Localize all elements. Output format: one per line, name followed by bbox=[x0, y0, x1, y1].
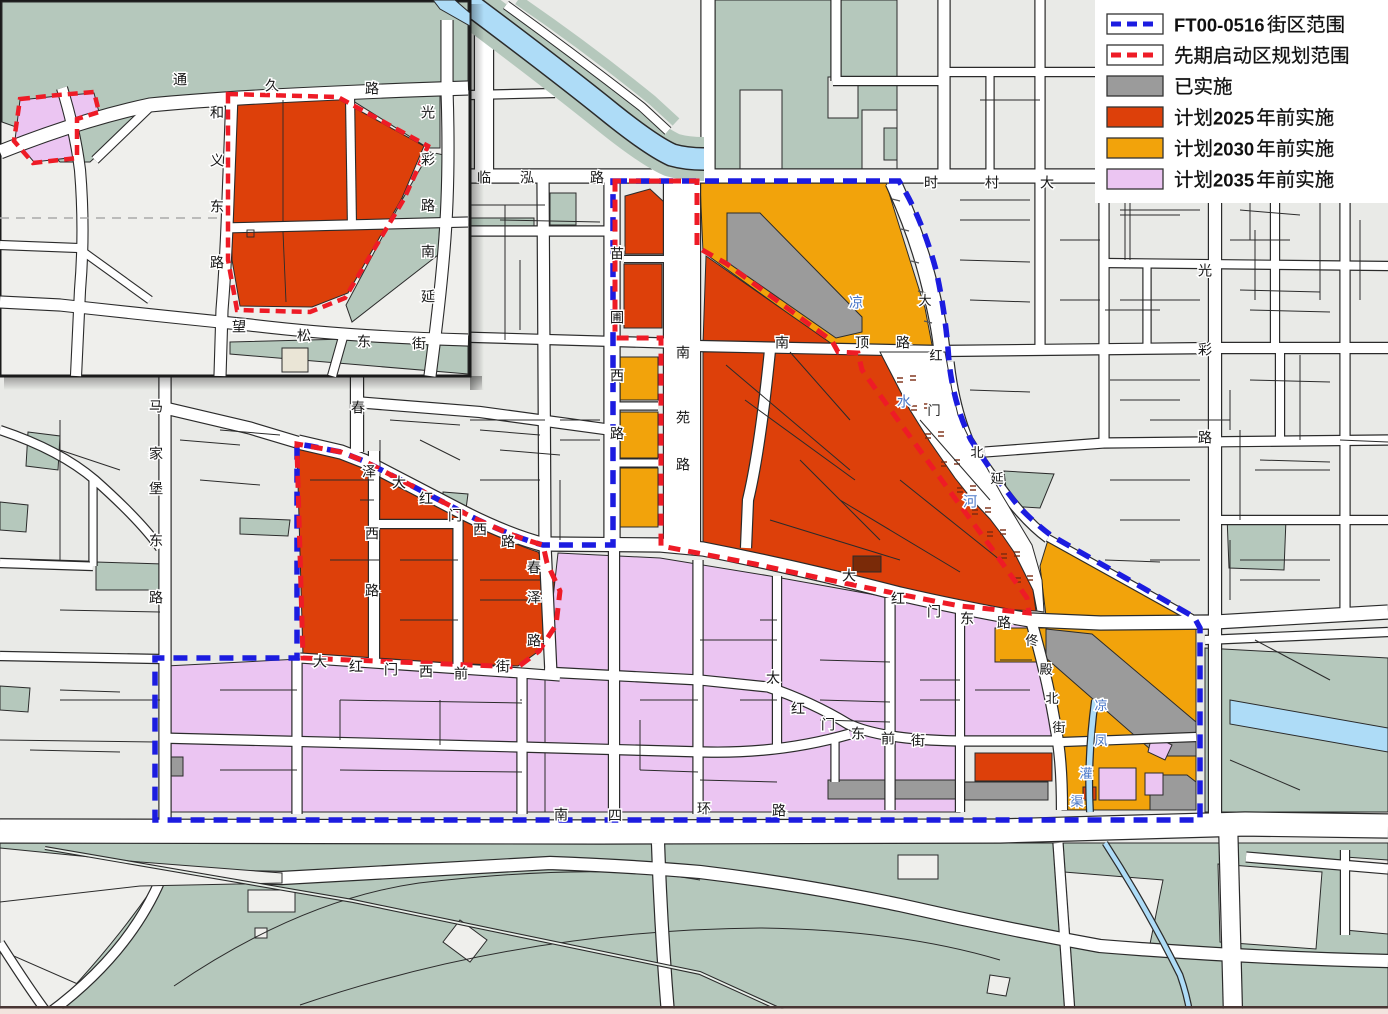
svg-text:2030: 2030 bbox=[1213, 138, 1254, 159]
svg-text:2025: 2025 bbox=[1213, 107, 1254, 128]
svg-text:FT00-0516: FT00-0516 bbox=[1174, 14, 1265, 35]
svg-text:2035: 2035 bbox=[1213, 169, 1254, 190]
